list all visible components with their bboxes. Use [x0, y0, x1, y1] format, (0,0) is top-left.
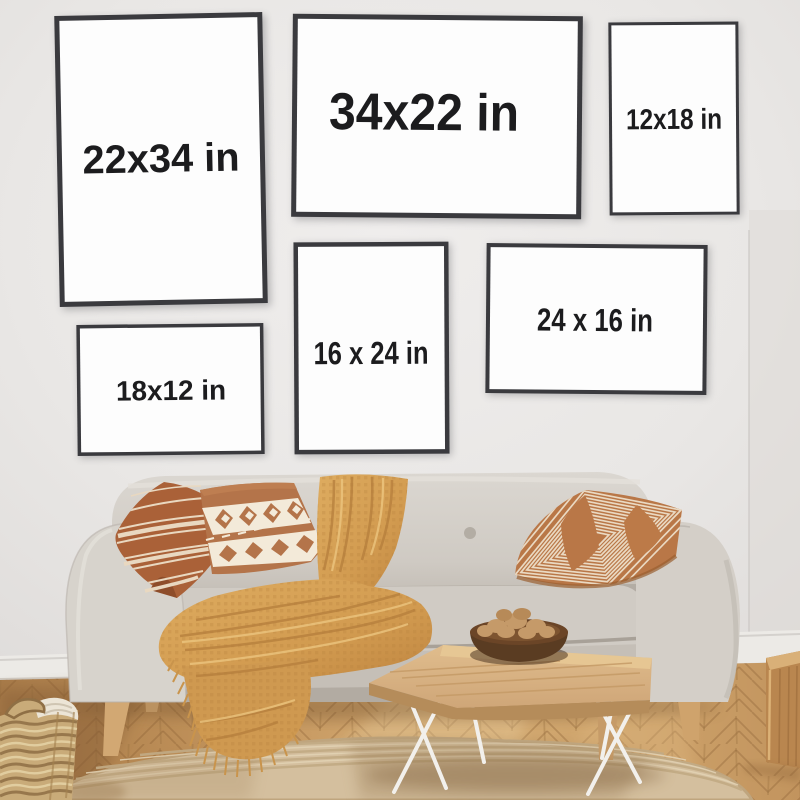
svg-text:12x18 in: 12x18 in	[626, 104, 722, 137]
svg-text:16 x 24 in: 16 x 24 in	[313, 335, 428, 372]
svg-text:18x12 in: 18x12 in	[116, 374, 226, 406]
svg-text:22x34 in: 22x34 in	[82, 135, 240, 182]
svg-text:34x22 in: 34x22 in	[329, 83, 519, 143]
svg-text:24 x 16 in: 24 x 16 in	[537, 301, 653, 338]
